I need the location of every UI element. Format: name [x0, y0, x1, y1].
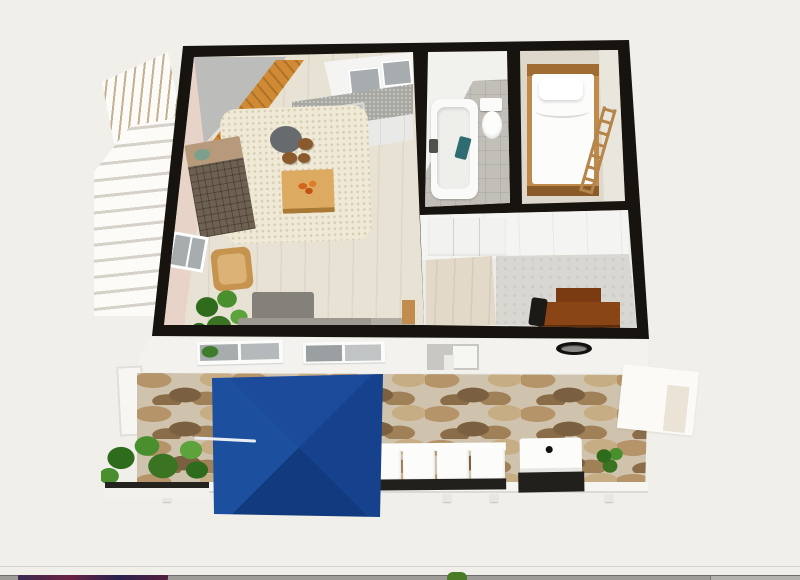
toilet[interactable]	[482, 111, 502, 139]
toilet-tank	[480, 98, 502, 111]
pillow	[539, 78, 583, 100]
vent-grate	[561, 345, 587, 352]
window-pane	[345, 344, 381, 361]
window-pane	[241, 343, 279, 360]
planter-boxes[interactable]	[101, 432, 213, 500]
railing-post	[443, 494, 451, 502]
wooden-desk[interactable]	[538, 302, 620, 328]
round-vent	[556, 342, 592, 355]
sofa-seat[interactable]	[238, 318, 415, 325]
planter-greens	[101, 432, 213, 487]
closet-doors[interactable]	[428, 218, 506, 256]
room-bathroom[interactable]	[425, 51, 510, 207]
bar-stool-3[interactable]	[298, 153, 310, 163]
awning-fold	[663, 385, 690, 433]
sideboard-plant	[191, 146, 213, 163]
bar-stool-1[interactable]	[298, 138, 313, 150]
door-leaf	[453, 346, 477, 368]
round-table[interactable]	[270, 126, 302, 153]
bath-faucet[interactable]	[429, 139, 438, 153]
blue-parasol[interactable]	[205, 371, 385, 518]
floorplan-3d-viewport[interactable]	[0, 0, 800, 580]
box-base	[518, 471, 584, 492]
sofa-cushion	[471, 448, 505, 480]
door-step	[444, 355, 454, 370]
terrace-bush[interactable]	[594, 444, 626, 476]
window-mullion	[185, 237, 192, 267]
storage-box-grill[interactable]	[518, 437, 587, 492]
outdoor-sofa-base	[369, 478, 506, 490]
white-awning	[617, 364, 699, 436]
catalog-plant-thumbnail[interactable]	[447, 572, 467, 580]
plant-through-window	[200, 345, 220, 360]
railing-post	[490, 494, 498, 502]
window-pane	[306, 345, 342, 362]
kitchen-window-2[interactable]	[381, 59, 414, 88]
facade-door[interactable]	[427, 344, 479, 370]
catalog-thumbnail-fragment[interactable]	[18, 575, 168, 580]
planter-front	[105, 488, 209, 498]
room-office[interactable]	[420, 210, 638, 328]
bar-stool-2[interactable]	[282, 152, 297, 164]
side-table[interactable]	[402, 300, 415, 324]
outdoor-sofa[interactable]	[367, 440, 507, 490]
sofa-cushion	[437, 449, 469, 481]
room-living-kitchen[interactable]	[164, 52, 424, 325]
wicker-armchair[interactable]	[210, 246, 254, 292]
room-bedroom[interactable]	[519, 50, 629, 205]
facade-window-2[interactable]	[303, 341, 385, 363]
bathtub[interactable]	[431, 99, 478, 199]
sofa-cushion	[403, 449, 435, 481]
armchair-seat	[217, 253, 248, 286]
coffee-table[interactable]	[281, 169, 334, 214]
bottom-divider	[0, 566, 800, 567]
facade-window-1[interactable]	[197, 340, 284, 365]
strip-right-panel	[711, 576, 800, 580]
duvet-fold	[535, 104, 589, 118]
railing-post	[605, 494, 613, 502]
flower-decor	[295, 178, 322, 197]
lid-knob	[546, 446, 553, 453]
